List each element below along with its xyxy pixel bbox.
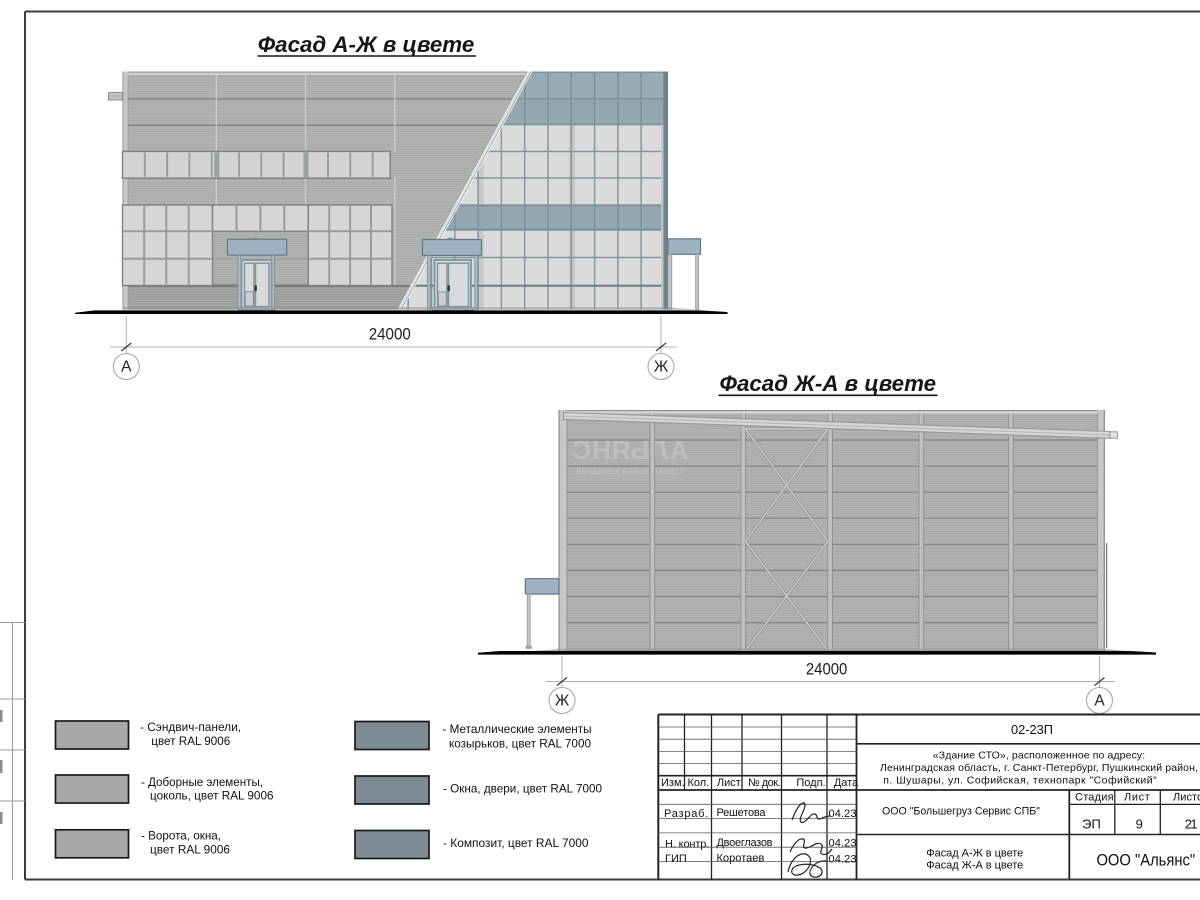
svg-text:«Здание СТО», расположенное по: «Здание СТО», расположенное по адресу:	[933, 749, 1145, 761]
svg-text:Подп.: Подп.	[796, 777, 825, 789]
svg-text:Кол.: Кол.	[688, 777, 710, 789]
svg-text:ООО "Альянс": ООО "Альянс"	[1096, 852, 1195, 870]
svg-text:04.23: 04.23	[829, 854, 857, 866]
svg-text:ЭП: ЭП	[1082, 816, 1101, 831]
svg-text:Лист: Лист	[717, 777, 741, 789]
svg-text:Лист: Лист	[1124, 791, 1150, 803]
svg-text:цвет RAL 9006: цвет RAL 9006	[151, 734, 230, 748]
svg-text:Разраб.: Разраб.	[664, 808, 708, 820]
svg-text:ГИП: ГИП	[665, 853, 687, 865]
svg-text:21: 21	[1185, 816, 1198, 831]
svg-text:Фасад А-Ж в цвете: Фасад А-Ж в цвете	[258, 32, 475, 57]
svg-text:п. Шушары, ул. Софийская, техн: п. Шушары, ул. Софийская, технопарк "Соф…	[883, 775, 1157, 787]
svg-text:Фасад Ж-А в цвете: Фасад Ж-А в цвете	[720, 371, 937, 396]
svg-text:А: А	[121, 359, 132, 376]
svg-text:Ж: Ж	[654, 359, 669, 376]
svg-text:04.23: 04.23	[829, 808, 857, 820]
svg-text:- Окна, двери, цвет RAL 7000: - Окна, двери, цвет RAL 7000	[443, 782, 602, 796]
svg-text:цоколь, цвет RAL 9006: цоколь, цвет RAL 9006	[150, 789, 274, 803]
svg-text:Н. контр.: Н. контр.	[665, 838, 709, 850]
svg-text:АЛЬЯНС: АЛЬЯНС	[571, 435, 688, 465]
svg-text:- Доборные элементы,: - Доборные элементы,	[141, 775, 263, 789]
svg-text:- Ворота, окна,: - Ворота, окна,	[141, 829, 221, 843]
svg-text:Листов: Листов	[1173, 791, 1200, 803]
svg-text:- Сэндвич-панели,: - Сэндвич-панели,	[140, 720, 241, 734]
svg-text:Ленинградская область, г. Санк: Ленинградская область, г. Санкт-Петербур…	[880, 762, 1198, 774]
svg-text:цвет RAL 9006: цвет RAL 9006	[150, 843, 230, 857]
svg-text:Изм.: Изм.	[661, 777, 685, 789]
svg-text:Решетова: Решетова	[717, 807, 767, 819]
svg-text:строительная компания: строительная компания	[576, 466, 684, 476]
svg-text:козырьков, цвет RAL 7000: козырьков, цвет RAL 7000	[449, 737, 591, 751]
svg-text:- Металлические элементы: - Металлические элементы	[443, 722, 592, 736]
svg-text:02-23П: 02-23П	[1011, 723, 1053, 737]
svg-text:- Композит, цвет RAL 7000: - Композит, цвет RAL 7000	[443, 836, 589, 850]
svg-text:Двоеглазов: Двоеглазов	[717, 837, 773, 849]
svg-text:Дата: Дата	[834, 777, 859, 789]
svg-text:Коротаев: Коротаев	[717, 853, 765, 865]
svg-text:А: А	[1094, 693, 1105, 710]
svg-text:Фасад Ж-А в цвете: Фасад Ж-А в цвете	[926, 859, 1023, 871]
svg-text:04.23: 04.23	[829, 838, 857, 850]
svg-text:9: 9	[1136, 816, 1143, 831]
svg-text:24000: 24000	[369, 326, 411, 344]
svg-text:Фасад А-Ж в цвете: Фасад А-Ж в цвете	[926, 847, 1023, 859]
svg-text:Ж: Ж	[555, 693, 570, 710]
svg-text:Стадия: Стадия	[1075, 791, 1114, 803]
svg-text:ООО "Большегруз Сервис СПБ": ООО "Большегруз Сервис СПБ"	[882, 805, 1040, 817]
svg-text:№ док.: № док.	[748, 777, 781, 789]
svg-text:24000: 24000	[806, 660, 848, 678]
